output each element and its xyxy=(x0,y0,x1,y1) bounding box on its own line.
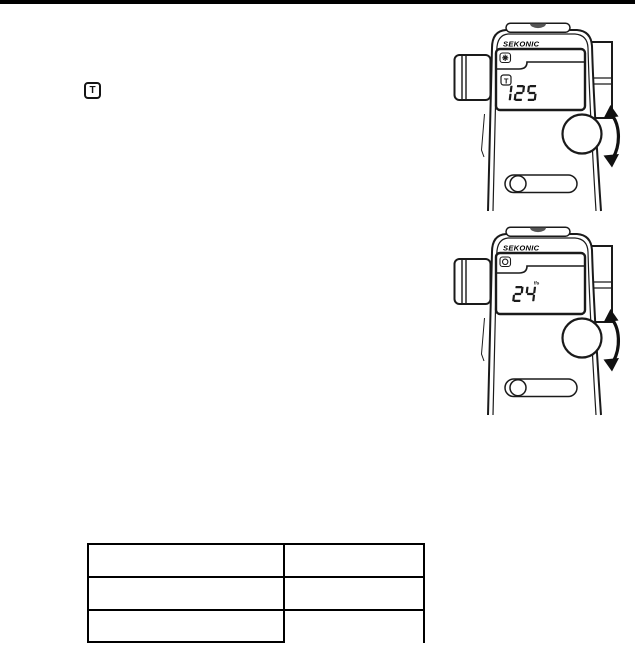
table-cell xyxy=(285,578,425,611)
table-cell xyxy=(87,611,285,643)
battery-cover-seam xyxy=(482,114,485,157)
lumisphere xyxy=(455,55,491,100)
light-meter-illustration-1: SEKONIC T xyxy=(450,22,625,212)
table-row xyxy=(87,545,425,578)
page-top-rule xyxy=(0,0,635,4)
table-cell xyxy=(285,611,425,643)
table-row xyxy=(87,611,425,643)
lcd-fps-suffix: f/s xyxy=(534,281,540,286)
table-cell xyxy=(285,545,425,578)
manual-page: T SEKONIC T xyxy=(0,0,635,645)
jog-dial xyxy=(563,319,602,358)
t-shutter-icon-label: T xyxy=(89,85,95,96)
battery-cover-seam xyxy=(482,318,485,361)
t-shutter-icon: T xyxy=(84,82,101,99)
light-meter-illustration-2: SEKONIC f/s xyxy=(450,226,625,416)
table-cell xyxy=(87,545,285,578)
reference-table xyxy=(87,543,425,643)
slide-switch-knob xyxy=(510,380,526,396)
t-mode-box-label: T xyxy=(504,77,509,86)
lumisphere xyxy=(455,259,491,304)
slide-switch-knob xyxy=(510,176,526,192)
rotate-arrow-icon xyxy=(604,309,620,372)
table-cell xyxy=(87,578,285,611)
lcd-display xyxy=(496,49,585,110)
jog-dial xyxy=(563,115,602,154)
sekonic-logo: SEKONIC xyxy=(503,40,540,49)
lcd-display xyxy=(496,253,585,314)
rotate-arrow-icon xyxy=(604,105,620,168)
sekonic-logo: SEKONIC xyxy=(503,244,540,253)
table-row xyxy=(87,578,425,611)
